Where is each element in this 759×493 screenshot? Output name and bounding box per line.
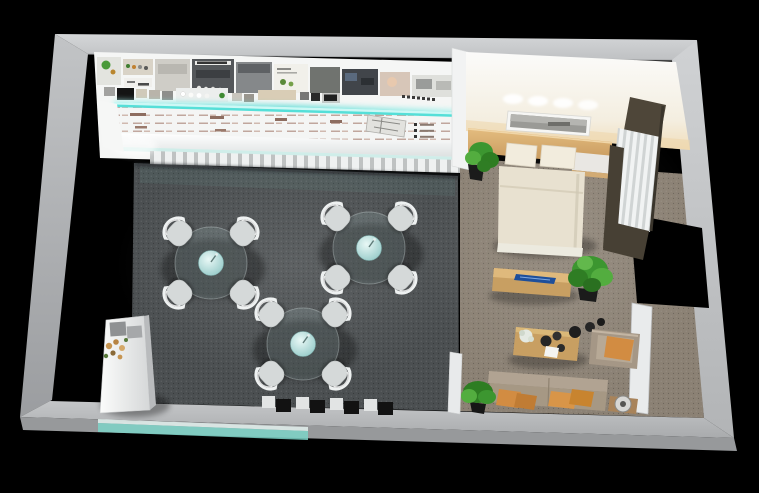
sofa-pillow [514,393,537,410]
bed-pillow [540,145,576,169]
armchair [589,329,640,369]
media-console [489,268,579,305]
sofa-pillow [569,389,594,407]
armchair-cushion [604,336,634,361]
divider-wall [448,352,462,414]
side-table-lamp [608,396,638,414]
render-canvas [0,0,759,493]
paper [544,346,559,358]
bed-pillow [505,143,537,167]
